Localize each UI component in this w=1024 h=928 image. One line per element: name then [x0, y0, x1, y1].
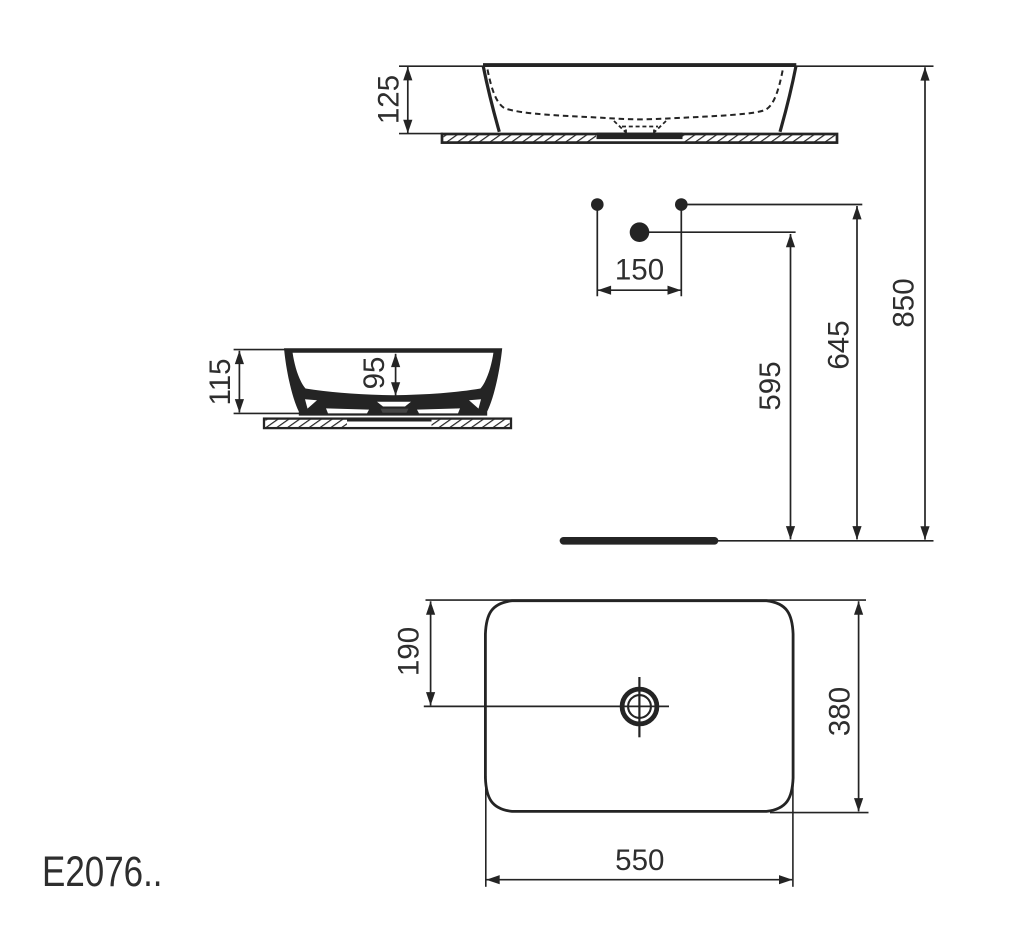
svg-text:595: 595 [754, 361, 787, 410]
svg-text:125: 125 [373, 75, 406, 124]
svg-text:645: 645 [823, 320, 856, 369]
svg-text:E2076..: E2076.. [42, 848, 163, 896]
svg-text:95: 95 [358, 357, 391, 390]
svg-text:150: 150 [615, 254, 664, 287]
svg-text:850: 850 [888, 278, 921, 327]
svg-text:190: 190 [393, 627, 426, 676]
svg-text:380: 380 [824, 687, 857, 736]
svg-text:550: 550 [615, 844, 664, 877]
svg-text:115: 115 [204, 358, 237, 405]
